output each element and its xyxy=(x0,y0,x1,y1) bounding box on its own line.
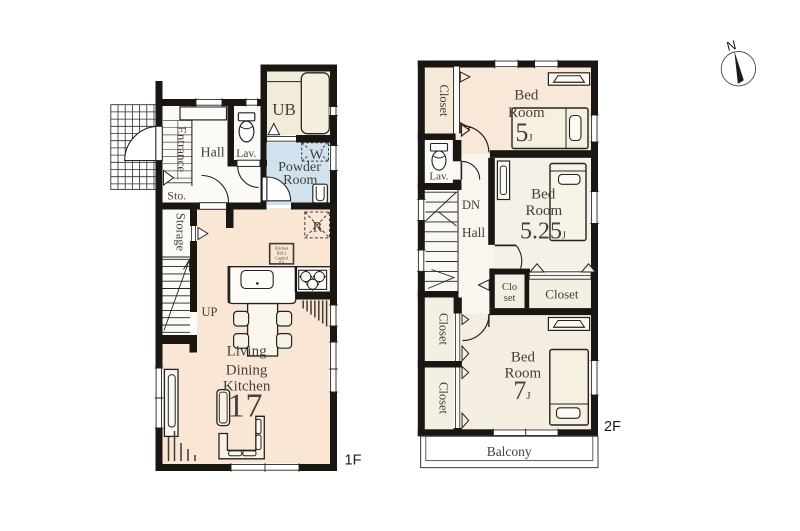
svg-text:1F: 1F xyxy=(345,453,362,469)
svg-text:x x: x x xyxy=(279,259,285,264)
svg-text:5.25J: 5.25J xyxy=(520,219,566,245)
svg-text:Dining: Dining xyxy=(226,362,268,378)
svg-text:R: R xyxy=(312,220,322,236)
svg-text:Clo: Clo xyxy=(502,282,517,293)
svg-text:Living: Living xyxy=(227,344,267,360)
svg-text:Bed: Bed xyxy=(511,350,536,366)
svg-text:Room: Room xyxy=(525,203,562,219)
svg-text:Hall: Hall xyxy=(201,146,225,161)
svg-text:Closet: Closet xyxy=(436,382,450,414)
svg-text:Closet: Closet xyxy=(545,287,579,302)
svg-text:Lav.: Lav. xyxy=(429,171,448,183)
svg-text:Bed: Bed xyxy=(514,88,539,104)
svg-text:2F: 2F xyxy=(604,419,621,435)
svg-text:DN: DN xyxy=(462,198,480,212)
svg-text:UP: UP xyxy=(202,305,218,319)
svg-text:Room: Room xyxy=(283,173,317,188)
svg-text:Lav.: Lav. xyxy=(236,148,256,160)
svg-text:set: set xyxy=(504,293,516,304)
svg-text:17: 17 xyxy=(228,388,264,425)
svg-text:Entrance: Entrance xyxy=(175,126,190,172)
svg-text:Closet: Closet xyxy=(436,313,450,345)
svg-text:Hall: Hall xyxy=(462,225,485,240)
svg-text:Balcony: Balcony xyxy=(487,444,532,459)
svg-text:Storage: Storage xyxy=(174,213,188,252)
svg-text:Closet: Closet xyxy=(437,85,451,117)
svg-text:Sto.: Sto. xyxy=(167,189,186,203)
svg-text:UB: UB xyxy=(272,100,296,119)
svg-text:Bed: Bed xyxy=(531,186,556,202)
